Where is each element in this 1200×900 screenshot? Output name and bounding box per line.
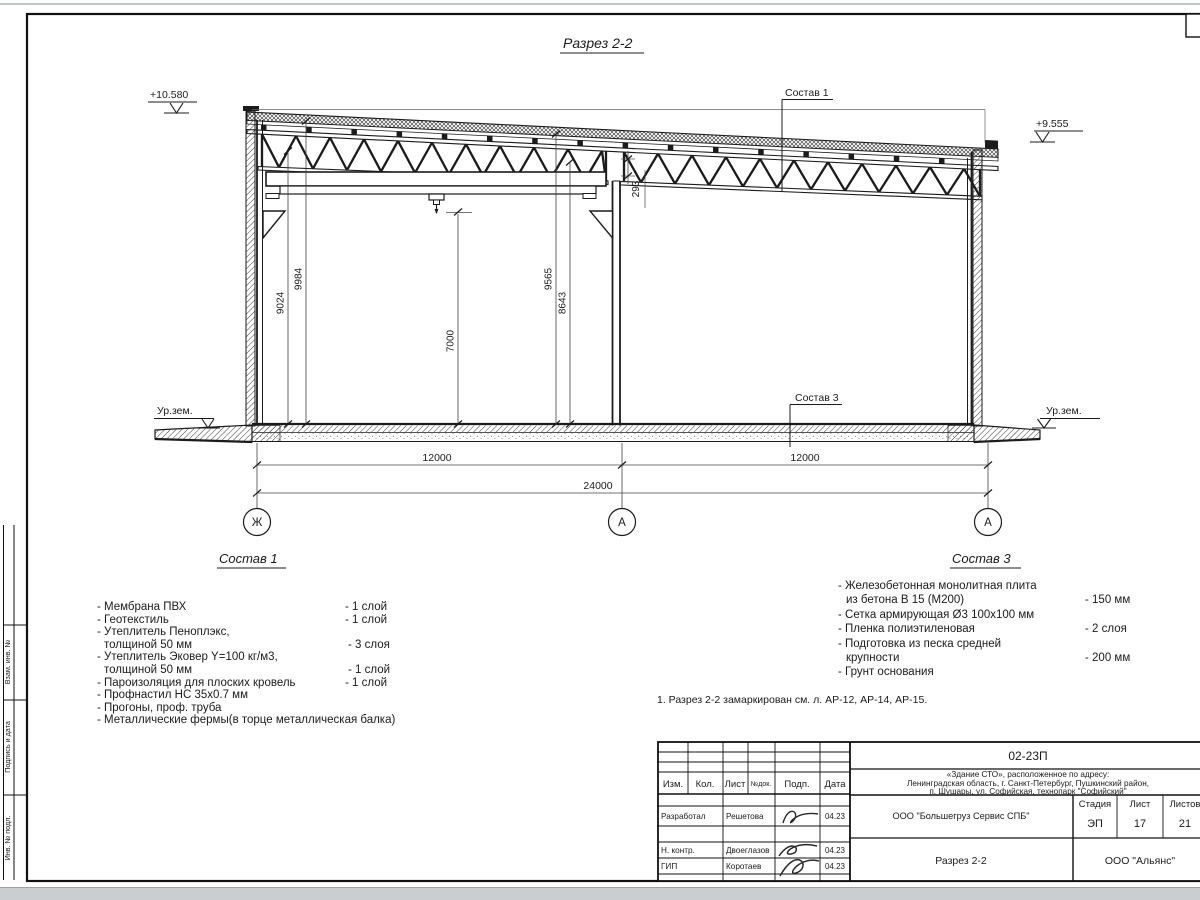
sostav1-heading: Состав 1: [219, 551, 278, 566]
stamp-label-inv: Инв. № подл.: [3, 816, 12, 861]
gap-dim-293: 293: [631, 180, 642, 197]
stamp-label-vzam: Взам. инв. №: [3, 639, 12, 684]
sostav3-qty: - 2 слоя: [1085, 623, 1127, 635]
side-stamp-column: Взам. инв. № Подпись и дата Инв. № подл.: [3, 525, 27, 880]
sostav1-qty: - 3 слоя: [348, 639, 390, 651]
sostav1-item: - Геотекстиль: [97, 614, 169, 626]
sostav1-block: Состав 1 - Мембрана ПВХ - 1 слой - Геоте…: [97, 551, 395, 726]
sostav1-item: - Утеплитель Пеноплэкс,: [97, 626, 230, 638]
col-doc: №док.: [751, 781, 772, 788]
roof-edge-cap: [985, 140, 998, 149]
sostav1-item: - Металлические фермы(в торце металличес…: [97, 714, 395, 726]
ground-left: Ур.зем.: [157, 405, 193, 417]
sheets-label: Листов: [1170, 799, 1200, 810]
sheet-value: 17: [1134, 818, 1146, 830]
section-drawing-canvas: Взам. инв. № Подпись и дата Инв. № подл.: [0, 0, 1200, 900]
left-wall-panel: [246, 111, 255, 426]
leader-sostav3: Состав 3: [795, 392, 839, 404]
project-code: 02-23П: [1008, 749, 1047, 763]
hdim-12000-left: 12000: [422, 452, 451, 464]
stage-value: ЭП: [1087, 818, 1103, 830]
axis-a-right: А: [984, 517, 992, 529]
row-date: 04.23: [825, 812, 846, 821]
row-date: 04.23: [825, 846, 846, 855]
col-izm: Изм.: [663, 779, 683, 790]
sheet-label: Лист: [1130, 799, 1151, 810]
sostav3-item: крупности: [846, 652, 899, 664]
sostav3-item: - Подготовка из песка средней: [838, 638, 1001, 650]
truss-bottom-chord-right: [620, 181, 982, 199]
sostav3-block: Состав 3 - Железобетонная монолитная пли…: [838, 551, 1130, 678]
sostav1-item: толщиной 50 мм: [104, 664, 192, 676]
sostav1-qty: - 1 слой: [345, 601, 387, 613]
left-corbel-bracket: [263, 211, 285, 238]
vdim-9565: 9565: [544, 267, 555, 290]
sostav1-qty: - 1 слой: [345, 677, 387, 689]
sostav1-item: - Профнастил НС 35х0.7 мм: [97, 689, 248, 701]
corner-inventory-box: [1186, 14, 1200, 37]
row-role: Разработал: [661, 812, 706, 821]
grid-axes: Ж А А: [244, 509, 1002, 536]
project-address-line: п. Шушары, ул. Софийская, технопарк "Соф…: [929, 787, 1126, 796]
sostav1-item: - Пароизоляция для плоских кровель: [97, 677, 296, 689]
row-name: Решетова: [726, 812, 764, 821]
sostav3-item: - Сетка армирующая Ø3 100х100 мм: [838, 609, 1034, 621]
sostav1-item: толщиной 50 мм: [104, 639, 192, 651]
design-company: ООО "Альянс": [1105, 855, 1175, 867]
sostav3-item: из бетона В 15 (М200): [846, 594, 964, 606]
col-data: Дата: [824, 779, 846, 790]
center-corbel-bracket: [590, 211, 613, 238]
client-org: ООО "Большегруз Сервис СПБ": [892, 811, 1029, 821]
ground-right: Ур.зем.: [1046, 405, 1082, 417]
doc-title: Разрез 2-2: [935, 855, 987, 867]
axis-zh: Ж: [252, 517, 263, 529]
col-kol: Кол.: [696, 779, 715, 790]
slab-sand-layer: [252, 433, 974, 442]
row-name: Коротаев: [726, 862, 761, 871]
title-block: Изм. Кол. Лист №док. Подп. Дата Разработ…: [658, 742, 1200, 881]
left-parapet-cap: [243, 106, 259, 111]
vdim-7000: 7000: [446, 329, 457, 352]
elevation-left: +10.580: [150, 89, 188, 101]
hdim-12000-right: 12000: [790, 452, 819, 464]
project-address-line: «Здание СТО», расположенное по адресу:: [947, 770, 1109, 779]
leader-sostav1: Состав 1: [785, 87, 829, 99]
stamp-label-podpis: Подпись и дата: [3, 721, 12, 773]
row-role: Н. контр.: [661, 846, 695, 855]
roof-deck-layer: [247, 121, 998, 162]
dimension-labels: 9024 9984 7000 9565 8643 293 12000 12000…: [276, 180, 820, 492]
sostav1-item: - Прогоны, проф. труба: [97, 702, 222, 714]
sostav1-qty: - 1 слой: [348, 664, 390, 676]
vdim-9024: 9024: [276, 291, 287, 314]
floor-slab: [155, 424, 1040, 442]
drawing-page: Взам. инв. № Подпись и дата Инв. № подл.: [0, 0, 1200, 900]
outside-page-strip: [0, 888, 1200, 900]
sostav3-item: - Грунт основания: [838, 666, 934, 678]
sostav3-heading: Состав 3: [952, 551, 1011, 566]
col-podp: Подп.: [784, 779, 809, 790]
elevation-right: +9.555: [1036, 118, 1069, 130]
hoist-trolley: [429, 194, 444, 200]
axis-a-center: А: [618, 517, 626, 529]
row-date: 04.23: [825, 862, 846, 871]
sheets-value: 21: [1179, 818, 1191, 830]
col-list: Лист: [725, 779, 746, 790]
crane-beam: [263, 172, 613, 238]
vdim-8643: 8643: [558, 291, 569, 314]
sostav1-item: - Мембрана ПВХ: [97, 601, 187, 613]
sostav3-qty: - 200 мм: [1085, 652, 1130, 664]
sostav1-item: - Утеплитель Эковер Y=100 кг/м3,: [97, 651, 278, 663]
right-wall-panel: [973, 150, 982, 426]
row-name: Двоеглазов: [726, 846, 770, 855]
sheet-note: 1. Разрез 2-2 замаркирован см. л. АР-12,…: [657, 694, 927, 706]
drawing-title: Разрез 2-2: [563, 35, 633, 51]
sostav1-qty: - 1 слой: [345, 614, 387, 626]
sostav3-item: - Пленка полиэтиленовая: [838, 623, 975, 635]
slab-screed-layer: [252, 426, 974, 433]
row-role: ГИП: [661, 862, 677, 871]
sostav3-item: - Железобетонная монолитная плита: [838, 580, 1037, 592]
hdim-24000: 24000: [583, 480, 612, 492]
stage-label: Стадия: [1079, 799, 1111, 810]
sostav3-qty: - 150 мм: [1085, 594, 1130, 606]
vdim-9984: 9984: [294, 267, 305, 290]
